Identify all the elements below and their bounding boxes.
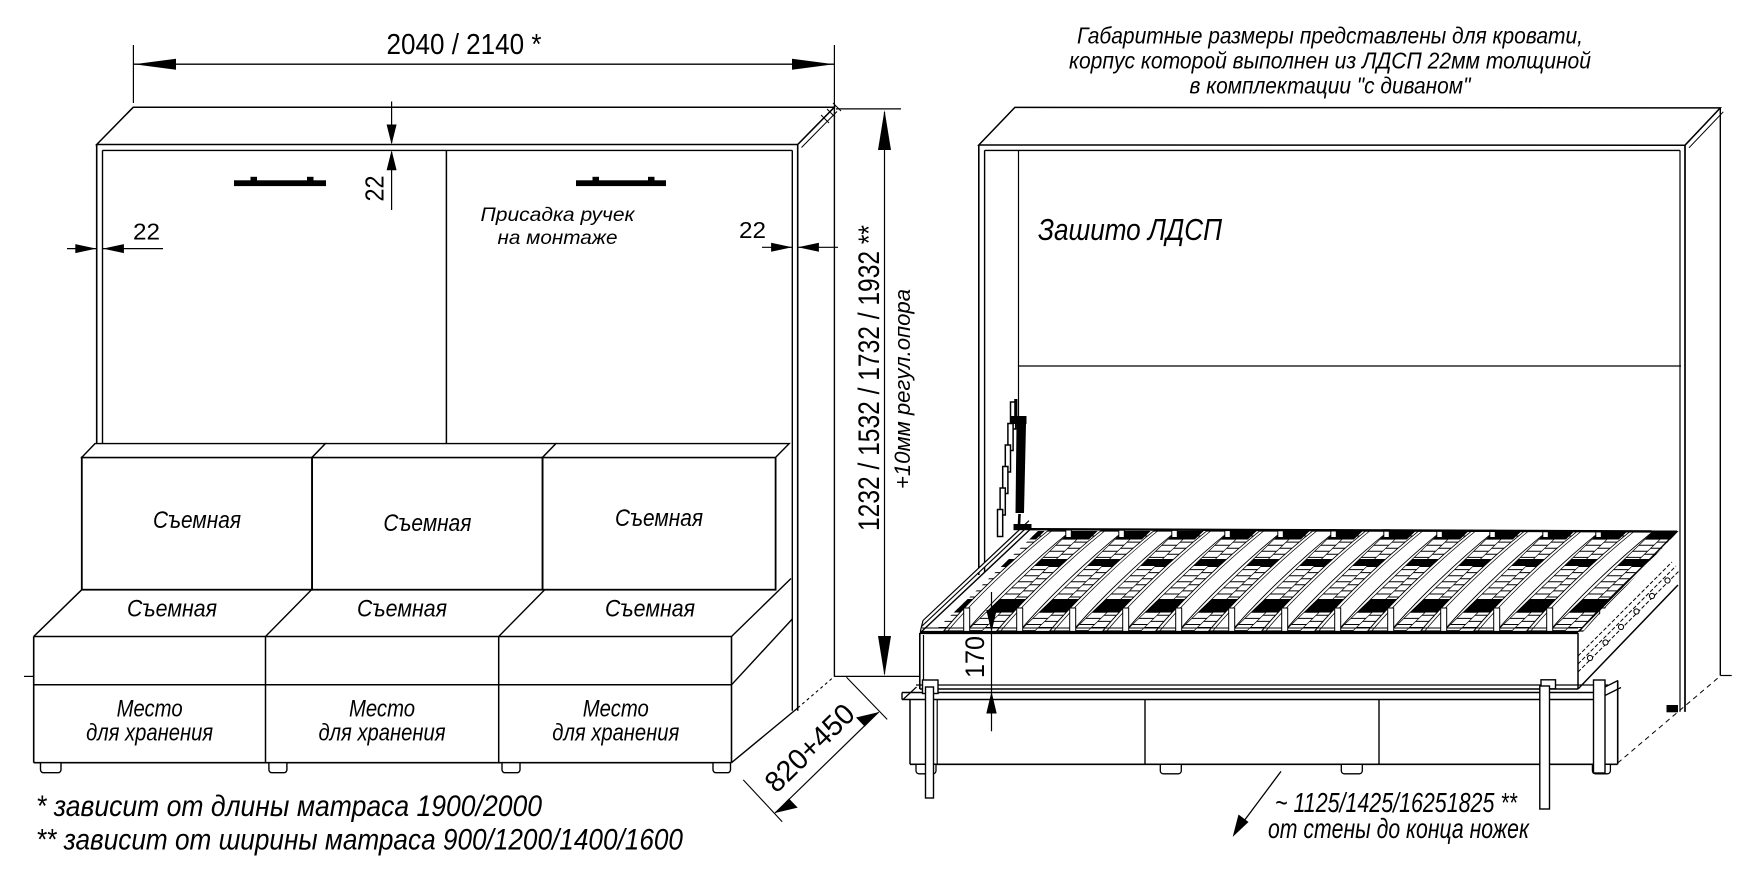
svg-text:Съемная: Съемная	[383, 510, 471, 537]
svg-text:170: 170	[960, 636, 990, 678]
svg-text:Зашито ЛДСП: Зашито ЛДСП	[1038, 212, 1222, 247]
svg-text:Съемная: Съемная	[357, 596, 447, 623]
svg-text:для хранения: для хранения	[86, 720, 213, 747]
svg-text:Съемная: Съемная	[127, 596, 217, 623]
svg-text:2040 / 2140 *: 2040 / 2140 *	[387, 29, 542, 61]
svg-text:Присадка ручек: Присадка ручек	[481, 205, 636, 226]
svg-text:1232 / 1532 / 1732 / 1932 **: 1232 / 1532 / 1732 / 1932 **	[853, 225, 886, 531]
svg-text:Место: Место	[349, 696, 415, 723]
svg-text:22: 22	[739, 217, 766, 243]
svg-text:Место: Место	[117, 696, 183, 723]
svg-text:Съемная: Съемная	[615, 505, 703, 532]
svg-text:Съемная: Съемная	[605, 596, 695, 623]
svg-text:на монтаже: на монтаже	[498, 228, 618, 249]
svg-text:* зависит от длины матраса 19: * зависит от длины матраса 1900/2000	[36, 790, 542, 823]
svg-text:Габаритные размеры представлен: Габаритные размеры представлены для кров…	[1077, 23, 1583, 49]
svg-text:корпус которой выполнен из ЛДС: корпус которой выполнен из ЛДСП 22мм тол…	[1069, 48, 1591, 74]
svg-text:** зависит от ширины матраса 9: ** зависит от ширины матраса 900/1200/14…	[36, 824, 683, 857]
svg-text:+10мм регул.опора: +10мм регул.опора	[890, 289, 915, 489]
svg-text:22: 22	[360, 176, 390, 202]
svg-text:в комплектации "с диваном": в комплектации "с диваном"	[1190, 73, 1473, 99]
svg-text:для хранения: для хранения	[319, 720, 446, 747]
svg-text:для хранения: для хранения	[552, 720, 679, 747]
svg-text:22: 22	[133, 219, 160, 245]
svg-text:Место: Место	[583, 696, 649, 723]
svg-text:от стены до конца ножек: от стены до конца ножек	[1268, 813, 1530, 844]
svg-text:Съемная: Съемная	[153, 507, 241, 534]
